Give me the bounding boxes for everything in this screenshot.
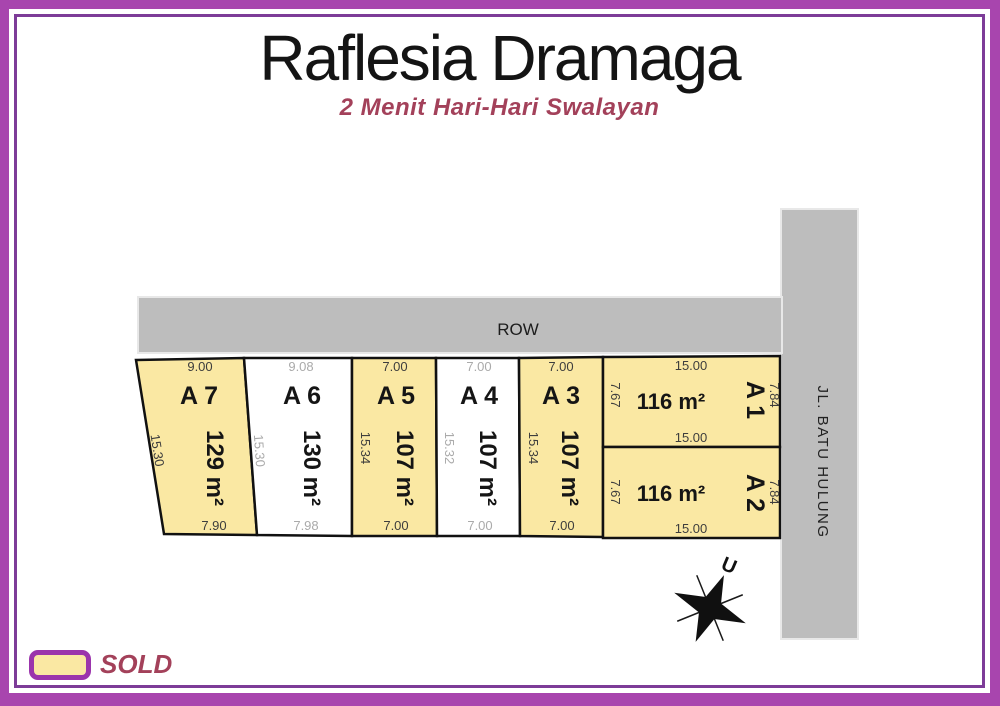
plot-a1-dim-right: 7.84 bbox=[767, 382, 782, 407]
plot-a3-area: 107 m² bbox=[556, 430, 583, 506]
plot-a3-dim-bottom: 7.00 bbox=[549, 518, 574, 533]
plot-a6-dim-bottom: 7.98 bbox=[293, 518, 318, 533]
plot-a7-area: 129 m² bbox=[201, 430, 228, 506]
plot-a3-id: A 3 bbox=[542, 382, 580, 410]
compass-star-icon bbox=[662, 562, 757, 654]
plot-a7-id: A 7 bbox=[180, 382, 218, 410]
plot-a7-dim-bottom: 7.90 bbox=[201, 518, 226, 533]
plot-a3-dim-top: 7.00 bbox=[548, 359, 573, 374]
road-batu-hulung-label: JL. BATU HULUNG bbox=[814, 385, 831, 538]
plot-a1-id: A 1 bbox=[741, 381, 769, 419]
road-row-label: ROW bbox=[497, 320, 539, 339]
plot-a3-dim-left: 15.34 bbox=[526, 432, 541, 465]
flyer-page: Raflesia Dramaga 2 Menit Hari-Hari Swala… bbox=[0, 0, 1000, 706]
plot-a6-id: A 6 bbox=[283, 382, 321, 410]
legend: SOLD bbox=[29, 649, 172, 680]
plot-a1-dim-top: 15.00 bbox=[675, 358, 708, 373]
plot-a5-dim-bottom: 7.00 bbox=[383, 518, 408, 533]
plot-a4-area: 107 m² bbox=[474, 430, 501, 506]
site-plan: ROW JL. BATU HULUNG A 7 9.00 15.30 7.90 … bbox=[9, 9, 990, 693]
sold-swatch bbox=[29, 650, 91, 680]
plot-a5-dim-top: 7.00 bbox=[382, 359, 407, 374]
plot-a2-dim-bottom: 15.00 bbox=[675, 521, 708, 536]
plot-a6-dim-top: 9.08 bbox=[288, 359, 313, 374]
plot-a2-id: A 2 bbox=[741, 474, 769, 512]
plot-a4-dim-left: 15.32 bbox=[442, 432, 457, 465]
plot-a4-dim-top: 7.00 bbox=[466, 359, 491, 374]
road-row bbox=[138, 297, 782, 353]
plot-a1-dim-bottom: 15.00 bbox=[675, 430, 708, 445]
compass: U bbox=[662, 541, 766, 655]
plot-a5-area: 107 m² bbox=[391, 430, 418, 506]
plot-a1-area: 116 m² bbox=[637, 389, 706, 414]
plot-a2-dim-left: 7.67 bbox=[608, 479, 623, 504]
plot-a4-id: A 4 bbox=[460, 382, 498, 410]
plot-a2-area: 116 m² bbox=[637, 481, 706, 506]
plot-a5-id: A 5 bbox=[377, 382, 415, 410]
plot-a6-dim-left: 15.30 bbox=[251, 434, 268, 468]
compass-north-label: U bbox=[718, 553, 740, 579]
plot-a5-dim-left: 15.34 bbox=[358, 432, 373, 465]
sold-label: SOLD bbox=[100, 649, 172, 680]
plot-a7-dim-top: 9.00 bbox=[187, 359, 212, 374]
plot-a1-dim-left: 7.67 bbox=[608, 382, 623, 407]
plot-a2-dim-right: 7.84 bbox=[767, 479, 782, 504]
plot-a4-dim-bottom: 7.00 bbox=[467, 518, 492, 533]
plot-a6-area: 130 m² bbox=[298, 430, 325, 506]
